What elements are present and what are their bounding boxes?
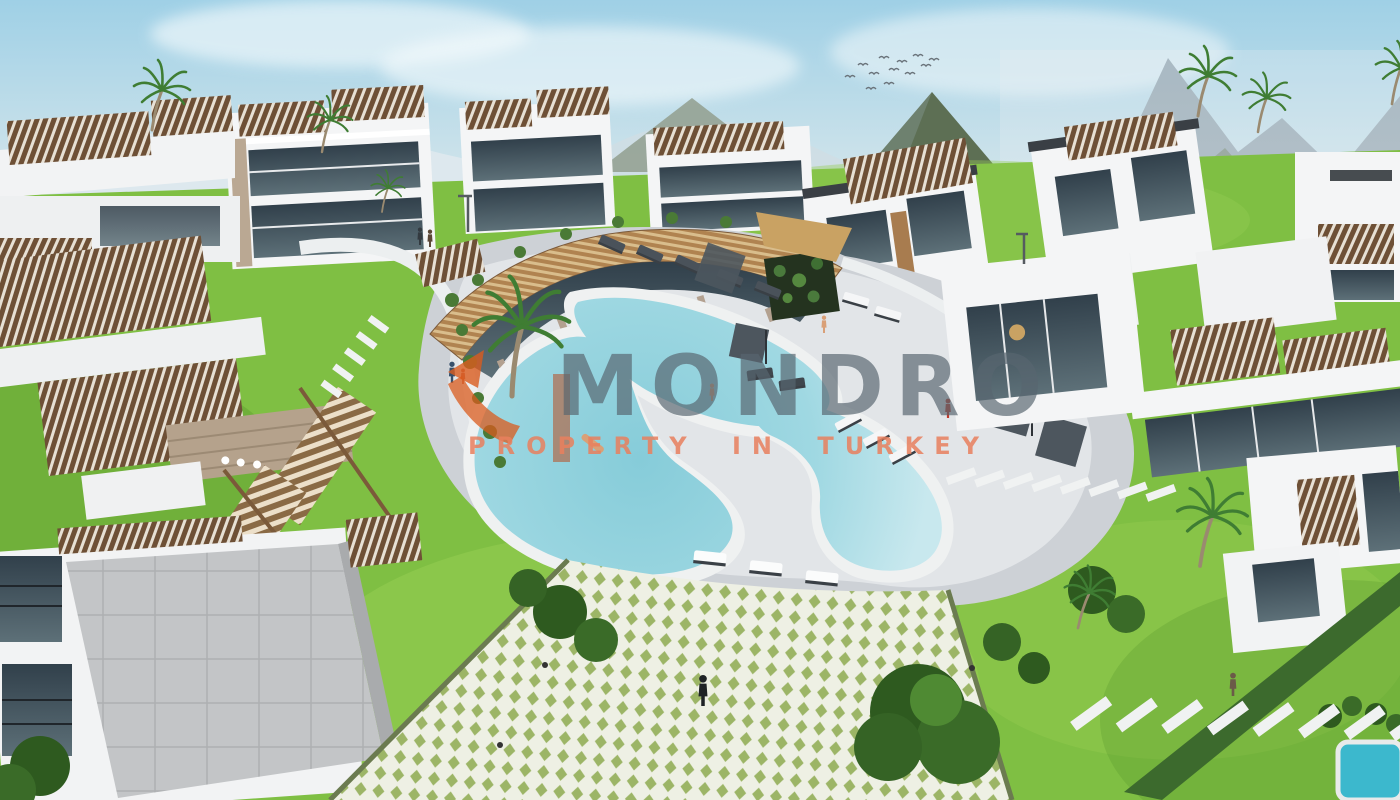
aerial-render: MONDRO PROPERTY IN TURKEY: [0, 0, 1400, 800]
scene: [0, 0, 1400, 800]
